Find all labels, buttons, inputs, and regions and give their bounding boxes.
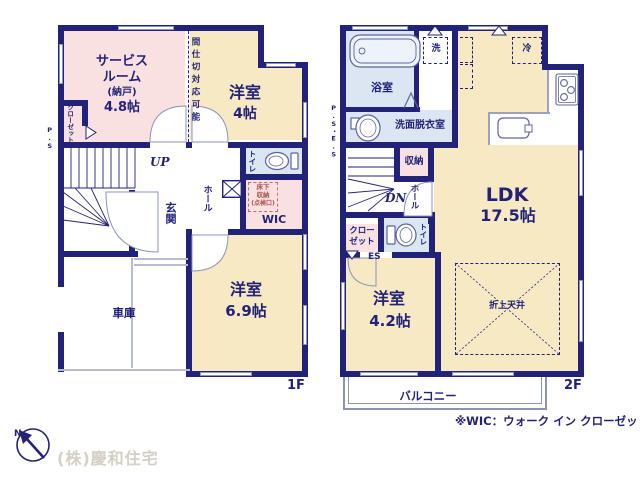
f1-wall-left-stub — [58, 332, 64, 372]
f1-bedroom4-room-right — [258, 68, 302, 140]
f1-toilet-label: トイレ — [247, 150, 256, 173]
f1-service-room-name2: ルーム — [103, 70, 142, 85]
f2-cupboard-dashed-box2 — [455, 64, 473, 89]
f2-storage-right-wall — [428, 142, 434, 182]
f1-wic-label: WIC — [262, 214, 286, 227]
f1-toilet-icon — [258, 149, 300, 173]
f2-vent-triangle-down — [346, 251, 358, 259]
f2-window-top-bath — [352, 26, 408, 30]
f2-ceiling-label: 折上天井 — [489, 301, 525, 312]
f2-ps-es-label: P.S・E.S — [329, 104, 337, 159]
f2-window-bottom-ldk — [452, 372, 514, 376]
f1-hall-label: ホール — [201, 185, 212, 212]
f1-window-left — [59, 44, 63, 84]
f2-sink-icon — [497, 115, 533, 141]
f1-garage-label: 車庫 — [113, 307, 136, 321]
f2-counter-line-left — [488, 112, 490, 145]
f1-window-right-2 — [303, 234, 307, 270]
f2-window-right-2 — [579, 280, 583, 342]
f2-ldk-fill-c — [458, 112, 488, 148]
f1-service-room-name1: サービス — [96, 54, 148, 69]
f1-wall-mid2 — [186, 142, 192, 148]
f1-bedroom4-size: 4帖 — [233, 106, 257, 123]
wic-note: ※WIC：ウォーク イン クローゼット — [455, 415, 640, 429]
f2-toilet-label: トイレ — [418, 223, 427, 246]
f1-window-right-1 — [303, 102, 307, 138]
f1-up-label: UP — [150, 155, 170, 169]
f2-stove-icon — [555, 73, 579, 106]
f2-counter-line-top — [488, 112, 550, 114]
f1-window-top — [118, 26, 174, 30]
f1-toilet-wall-bottom — [240, 174, 302, 180]
f1-partition-dashed-line — [188, 31, 189, 142]
f2-fridge-label: 冷 — [522, 44, 531, 55]
f1-underfloor-line2: 収納 — [257, 192, 270, 200]
f2-washbasin-icon — [350, 111, 382, 144]
f1-service-room-sub: (納戸) — [107, 87, 136, 99]
f1-porch-step-line1 — [134, 258, 188, 260]
f2-cupboard-dashed-box1 — [455, 37, 473, 63]
f1-window-notch — [266, 63, 296, 67]
f1-inspection-hatch — [222, 180, 242, 198]
f2-hall-label: ホール — [409, 184, 419, 210]
f2-window-bottom-bed — [360, 372, 418, 376]
f1-service-room-size: 4.8帖 — [104, 100, 140, 115]
f1-porch-step-line2 — [134, 264, 188, 266]
f1-bedroom4-name: 洋室 — [229, 84, 261, 103]
f1-closet-wall-right — [82, 100, 88, 126]
f1-bedroom69-size: 6.9帖 — [225, 303, 267, 321]
f1-ps-label: P.S — [45, 126, 53, 150]
f1-window-bottom — [200, 372, 252, 376]
f2-storage-label: 収納 — [404, 156, 423, 167]
f2-bathtub-icon — [349, 34, 421, 68]
f1-closet-door-mark — [86, 126, 96, 139]
f2-washer-label: 洗 — [431, 44, 440, 55]
f1-stairs — [63, 148, 147, 230]
f2-vent-triangle-1 — [428, 26, 442, 35]
f1-window-right-3 — [303, 305, 307, 345]
f2-bedroom42-right-wall — [435, 252, 441, 377]
f2-counter-line-col — [547, 70, 549, 114]
f1-bed69-wall-top-b — [228, 229, 302, 235]
f2-bedroom42-size: 4.2帖 — [369, 313, 411, 331]
north-compass-icon: N — [14, 426, 54, 466]
f1-entrance-label: 玄関 — [163, 202, 176, 224]
f1-garage-opening-line — [58, 369, 190, 371]
f2-balcony-label: バルコニー — [399, 390, 456, 404]
f1-closet-label: クローゼット — [65, 104, 73, 143]
floorplan-canvas: サービス ルーム (納戸) 4.8帖 間仕切対応可能 クローゼット P.S 洋室… — [0, 0, 640, 480]
company-name: (株)慶和住宅 — [57, 450, 159, 469]
f2-bath-folding-door — [403, 90, 419, 110]
f2-ldk-name: LDK — [486, 184, 529, 206]
f2-closet-label2: ゼット — [349, 237, 375, 247]
f1-floor-label: 1F — [287, 378, 305, 393]
f2-floor-label: 2F — [564, 378, 582, 393]
north-letter: N — [14, 429, 22, 439]
f2-window-left — [341, 282, 345, 330]
f2-es-label: ES — [368, 252, 381, 263]
f2-closet-label1: クロー — [349, 226, 375, 236]
f2-vent-triangle-2 — [492, 26, 506, 35]
f1-bedroom69-door-arc — [192, 235, 228, 271]
f2-toilet-icon — [386, 221, 418, 249]
f2-ldk-size: 17.5帖 — [480, 207, 535, 226]
f1-underfloor-line3: (点検口) — [251, 200, 275, 207]
f2-dn-label: DN — [385, 191, 406, 205]
f2-bath-label: 浴室 — [371, 82, 393, 95]
f1-partition-note: 間仕切対応可能 — [190, 37, 200, 125]
f2-bedroom42-name: 洋室 — [373, 290, 405, 309]
f1-service-door-arc — [150, 106, 186, 142]
f1-bedroom69-name: 洋室 — [230, 281, 262, 300]
f2-window-right-1 — [579, 150, 583, 196]
f2-washroom-label: 洗面脱衣室 — [395, 120, 445, 132]
